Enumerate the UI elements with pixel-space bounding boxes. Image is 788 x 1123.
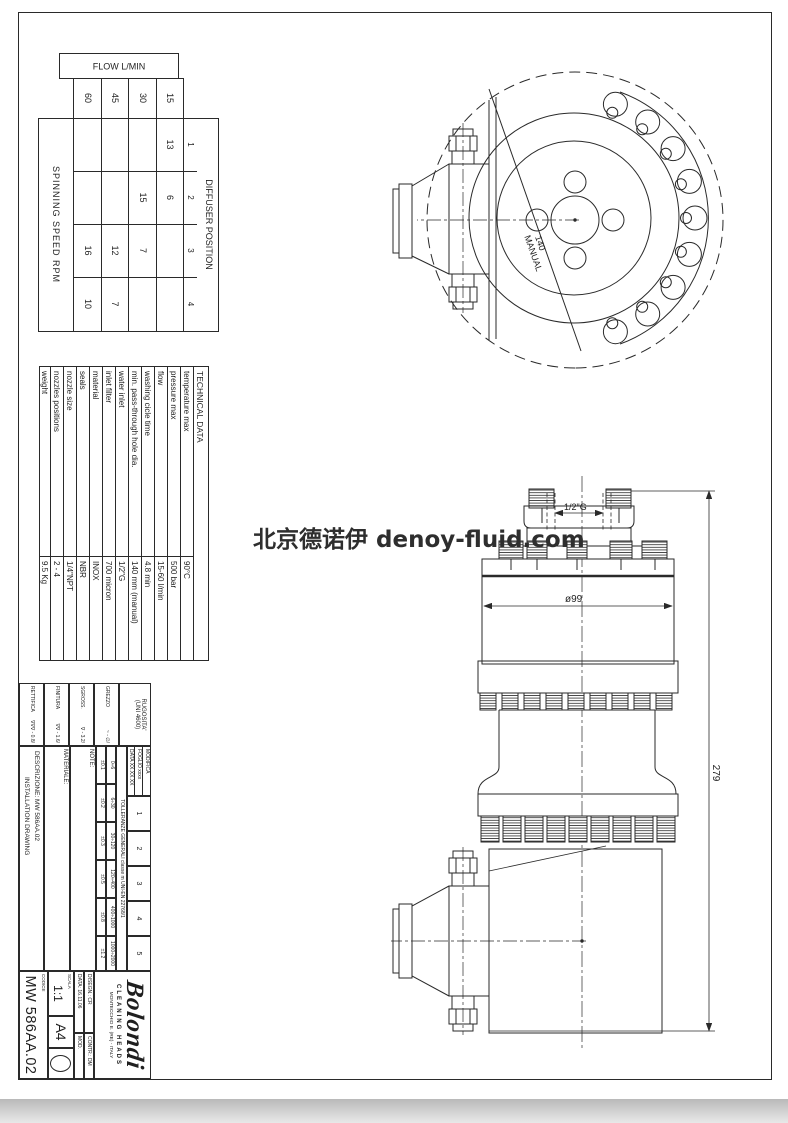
tol-value: ±0.8 bbox=[96, 898, 106, 936]
flow-value: 30 bbox=[138, 78, 148, 118]
materiale-cell: MATERIALE: bbox=[44, 746, 70, 971]
scallop-balls bbox=[603, 92, 707, 343]
rpm-cell: 7 bbox=[138, 224, 148, 277]
modifica-label: MODIFICA bbox=[142, 747, 150, 795]
mod-cell: MOD. bbox=[74, 1033, 84, 1079]
rugosita-sub: (UNI 4600) bbox=[134, 684, 140, 745]
flange-bolts-mid bbox=[480, 693, 672, 710]
note-cell: NOTE: bbox=[70, 746, 96, 971]
tol-value: ±1.2 bbox=[96, 936, 106, 971]
grezzo-symbol: ~ - ∅/ bbox=[104, 730, 110, 743]
data-xx-label: DATA XX.XX.XX bbox=[128, 747, 135, 795]
flow-header-label: FLOW L/MIN bbox=[93, 61, 146, 71]
tech-label: seals bbox=[78, 371, 87, 390]
tech-value: 140 mm (manual) bbox=[130, 561, 139, 624]
diffuser-pos-3: 3 bbox=[186, 224, 195, 277]
descrizione-cell: DESCRIZIONE: MW 586AA.02 INSTALLATION DR… bbox=[19, 746, 44, 971]
svg-text:ø99: ø99 bbox=[565, 594, 583, 605]
tech-value: 90°C bbox=[182, 561, 191, 579]
note-label: NOTE: bbox=[88, 749, 94, 767]
data-cell: DATA: 16.11.06 bbox=[74, 971, 84, 1033]
diffuser-position-header: DIFFUSER POSITION bbox=[204, 118, 214, 331]
tech-value: 15-60 l/min bbox=[156, 561, 165, 601]
technical-data-title: TECHNICAL DATA bbox=[195, 371, 205, 443]
tol-range: 6÷30 bbox=[106, 784, 116, 822]
rpm-cell: 7 bbox=[110, 277, 120, 331]
finitura-symbol: ∇∇ - 1.6/ bbox=[54, 724, 60, 743]
tol-range: 400÷1000 bbox=[106, 898, 116, 936]
watermark: 北京德诺伊 denoy-fluid.com bbox=[253, 520, 585, 554]
codice-label: CODICE bbox=[41, 974, 46, 992]
side-view: 1/2"G bbox=[391, 476, 721, 1048]
flow-header-box: FLOW L/MIN bbox=[59, 53, 179, 79]
rpm-cell: 12 bbox=[110, 224, 120, 277]
flow-value: 60 bbox=[83, 78, 93, 118]
tech-value: 1/4"NPT bbox=[65, 561, 74, 591]
rpm-cell: 13 bbox=[165, 118, 175, 171]
front-view: 140 MANUAL bbox=[393, 72, 723, 368]
rugosita-cell: RUGOSITA' (UNI 4600) bbox=[119, 683, 151, 746]
tech-label: nozzles positions bbox=[52, 371, 61, 432]
tol-range: 1000÷2000 bbox=[106, 936, 116, 971]
overall-length-dim: 279 bbox=[489, 491, 721, 1031]
tech-label: pressure max bbox=[169, 371, 178, 419]
tech-label: temperature max bbox=[182, 371, 191, 431]
materiale-label: MATERIALE: bbox=[62, 749, 68, 784]
svg-text:1/2"G: 1/2"G bbox=[564, 502, 587, 512]
tol-value: ±0.2 bbox=[96, 784, 106, 822]
tech-value: 9.5 Kg bbox=[40, 561, 49, 584]
diffuser-pos-4: 4 bbox=[186, 277, 195, 331]
modifica-col-5: 5 bbox=[127, 936, 151, 971]
tech-label: washing cicle time bbox=[143, 371, 152, 436]
sgross-label: SGROSS. bbox=[79, 686, 85, 709]
tol-range: 0÷6 bbox=[106, 746, 116, 784]
finitura-cell: FINITURA ∇∇ - 1.6/ bbox=[44, 683, 69, 746]
foglio-label: FOGLIO xxxx bbox=[135, 747, 143, 795]
inlet-thread-dim: 1/2"G bbox=[564, 502, 587, 512]
disegn-cell: DISEGN.: CR bbox=[84, 971, 94, 1033]
tech-value: 500 bar bbox=[169, 561, 178, 588]
sgross-cell: SGROSS. ∇ - 3.2/ bbox=[69, 683, 94, 746]
rpm-cell: 15 bbox=[138, 171, 148, 224]
rettifica-cell: RETTIFICA ∇∇∇ - 0.8/ bbox=[19, 683, 44, 746]
logo-cell: Bolondi CLEANING HEADS MONTECCHIO E. (RE… bbox=[94, 971, 151, 1079]
diffuser-pos-1: 1 bbox=[186, 118, 195, 171]
head-body-circle bbox=[469, 113, 679, 323]
scanned-drawing-page: 140 MANUAL bbox=[0, 0, 788, 1123]
tol-value: ±0.3 bbox=[96, 822, 106, 860]
modifica-col-1: 1 bbox=[127, 796, 151, 831]
rpm-cell: 16 bbox=[83, 224, 93, 277]
body-diameter-dim: ø99 bbox=[565, 594, 583, 605]
tech-label: water inlet bbox=[117, 371, 126, 407]
rettifica-symbol: ∇∇∇ - 0.8/ bbox=[29, 720, 35, 743]
tech-value: 1/2"G bbox=[117, 561, 126, 581]
tech-value: 4.8 min bbox=[143, 561, 152, 587]
finitura-label: FINITURA bbox=[54, 686, 60, 709]
rpm-cell: 6 bbox=[165, 171, 175, 224]
tol-value: ±0.5 bbox=[96, 860, 106, 898]
codice-value: MW 586AA.02 bbox=[22, 972, 38, 1078]
tech-value: 700 micron bbox=[104, 561, 113, 601]
bolondi-logo: Bolondi bbox=[122, 971, 147, 1079]
tech-value: INOX bbox=[91, 561, 100, 581]
codice-cell: CODICE MW 586AA.02 bbox=[19, 971, 48, 1079]
grezzo-label: GREZZO bbox=[104, 686, 110, 707]
formato-cell: A4 bbox=[48, 1016, 74, 1048]
modifica-col-2: 2 bbox=[127, 831, 151, 866]
tech-label: inlet filter bbox=[104, 371, 113, 403]
scala-label: SCALA bbox=[67, 974, 72, 989]
rotor-face-circle bbox=[497, 141, 651, 295]
tech-label: nozzle size bbox=[65, 371, 74, 411]
tolleranze-header: TOLLERANZE GENERALI classe m UNI-EN 2276… bbox=[116, 746, 127, 971]
tech-label: material bbox=[91, 371, 100, 399]
diffuser-pos-2: 2 bbox=[186, 171, 195, 224]
flow-value: 45 bbox=[110, 78, 120, 118]
descrizione-line2: INSTALLATION DRAWING bbox=[22, 751, 32, 966]
modifica-col-3: 3 bbox=[127, 866, 151, 901]
tol-range: 120÷400 bbox=[106, 860, 116, 898]
scala-cell: SCALA 1:1 bbox=[48, 971, 74, 1016]
flow-value: 15 bbox=[165, 78, 175, 118]
grezzo-cell: GREZZO ~ - ∅/ bbox=[94, 683, 119, 746]
tech-label: flow bbox=[156, 371, 165, 385]
logo-address: MONTECCHIO E. (RE) - ITALY bbox=[108, 972, 113, 1078]
revision-circle bbox=[51, 1055, 72, 1072]
modifica-label-cell: MODIFICA FOGLIO xxxx DATA XX.XX.XX bbox=[127, 746, 151, 796]
flange-bolts-rear bbox=[481, 816, 675, 842]
pass-through-label: 140 MANUAL bbox=[522, 231, 553, 273]
tol-value: ±0.1 bbox=[96, 746, 106, 784]
tol-range: 30÷120 bbox=[106, 822, 116, 860]
tech-label: min. pass-through hole dia. bbox=[130, 371, 139, 468]
tech-value: NBR bbox=[78, 561, 87, 578]
tech-value: 2 - 4 bbox=[52, 561, 61, 577]
rugosita-label: RUGOSITA' bbox=[140, 684, 146, 745]
revision-cell bbox=[48, 1048, 74, 1079]
scala-value: 1:1 bbox=[51, 972, 65, 1015]
modifica-col-4: 4 bbox=[127, 901, 151, 936]
sgross-symbol: ∇ - 3.2/ bbox=[79, 727, 85, 743]
contr-cell: CONTR.: DM bbox=[84, 1033, 94, 1079]
svg-text:279: 279 bbox=[710, 765, 721, 782]
descrizione-line1: DESCRIZIONE: MW 586AA.02 bbox=[31, 751, 41, 966]
tech-label: weight bbox=[40, 371, 49, 394]
spinning-speed-label: SPINNING SPEED RPM bbox=[51, 118, 61, 331]
rpm-cell: 10 bbox=[83, 277, 93, 331]
scan-edge-shadow bbox=[0, 1099, 788, 1123]
rettifica-label: RETTIFICA bbox=[29, 686, 35, 712]
